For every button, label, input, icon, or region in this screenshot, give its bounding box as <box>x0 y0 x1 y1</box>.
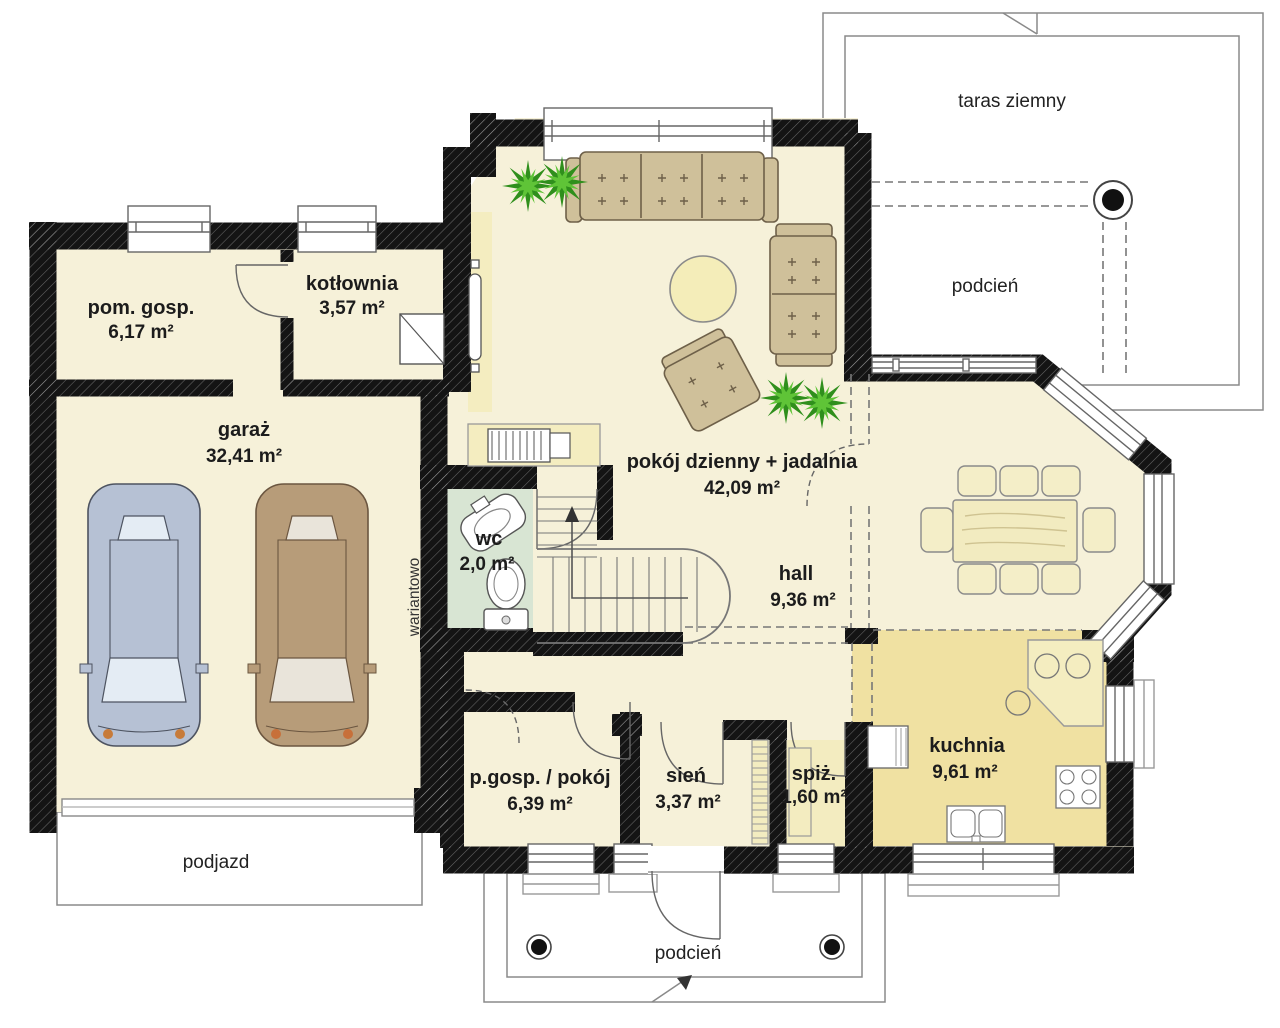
plant-icon <box>502 160 554 212</box>
stove <box>1056 766 1100 808</box>
column-icon <box>1102 189 1124 211</box>
dining-chair <box>958 564 996 594</box>
label-hall: hall <box>779 563 813 585</box>
window-pom-gosp <box>128 206 210 252</box>
window-kitchen-east <box>1106 680 1154 768</box>
label-podcien-bottom: podcień <box>655 943 722 964</box>
dining-chair <box>1000 466 1038 496</box>
porch-column-left-core <box>531 939 547 955</box>
sofa-large <box>566 152 778 222</box>
label-wc: wc <box>475 528 503 550</box>
dining-chair <box>1000 564 1038 594</box>
window-kitchen-south <box>908 844 1059 896</box>
radiator <box>469 260 481 372</box>
area-wc: 2,0 m² <box>460 554 515 575</box>
door-entry <box>652 871 720 939</box>
area-sien: 3,37 m² <box>655 792 720 813</box>
area-garaz: 32,41 m² <box>206 446 282 467</box>
label-kuchnia: kuchnia <box>929 735 1005 757</box>
taras-corner-mark <box>1003 13 1037 34</box>
entry-door-opening <box>648 846 724 874</box>
garage-door <box>62 799 414 816</box>
car-brown <box>248 484 376 746</box>
label-pgosp-pokoj: p.gosp. / pokój <box>469 767 610 789</box>
label-garaz: garaż <box>218 419 270 441</box>
window-spiz-south <box>773 844 839 892</box>
floor-plan: pom. gosp. 6,17 m² kotłownia 3,57 m² gar… <box>0 0 1280 1028</box>
porch-column-right-core <box>824 939 840 955</box>
area-pokoj-dzienny: 42,09 m² <box>704 478 780 499</box>
fireplace <box>468 424 600 466</box>
window-bay-east <box>1144 474 1174 584</box>
dining-chair <box>1083 508 1115 552</box>
area-spiz: 1,60 m² <box>781 787 846 808</box>
area-kuchnia: 9,61 m² <box>932 762 997 783</box>
window-kotlownia <box>298 206 376 252</box>
dining-chair <box>921 508 953 552</box>
area-pgosp-pokoj: 6,39 m² <box>507 794 572 815</box>
dining-chair <box>958 466 996 496</box>
floor-plan-page: pom. gosp. 6,17 m² kotłownia 3,57 m² gar… <box>0 0 1280 1028</box>
label-sien: sień <box>666 765 706 787</box>
label-podcien-right: podcień <box>952 276 1019 297</box>
glass-door-podcien <box>872 357 1036 373</box>
area-pom-gosp: 6,17 m² <box>108 322 173 343</box>
fridge <box>868 726 908 768</box>
plant-icon <box>760 372 812 424</box>
taras-inner-outline <box>845 36 1239 385</box>
label-kotlownia: kotłownia <box>306 273 399 295</box>
label-taras: taras ziemny <box>958 91 1066 112</box>
area-kotlownia: 3,57 m² <box>319 298 384 319</box>
dining-chair <box>1042 564 1080 594</box>
label-pom-gosp: pom. gosp. <box>88 297 195 319</box>
plant-icon <box>536 156 588 208</box>
coffee-table <box>670 256 736 322</box>
dining-chair <box>1042 466 1080 496</box>
label-wariantowo: wariantowo <box>406 558 423 637</box>
label-spiz: spiż. <box>792 763 836 785</box>
boiler <box>400 314 444 364</box>
area-hall: 9,36 m² <box>770 590 835 611</box>
window-pgosp-south <box>523 844 599 894</box>
taras-outer-outline <box>823 13 1263 410</box>
kitchen-sink <box>947 806 1005 842</box>
sofa-small <box>770 224 836 366</box>
plant-icon <box>796 377 848 429</box>
dining-table <box>953 500 1077 562</box>
label-podjazd: podjazd <box>183 852 250 873</box>
car-blue <box>80 484 208 746</box>
label-pokoj-dzienny: pokój dzienny + jadalnia <box>627 451 858 473</box>
